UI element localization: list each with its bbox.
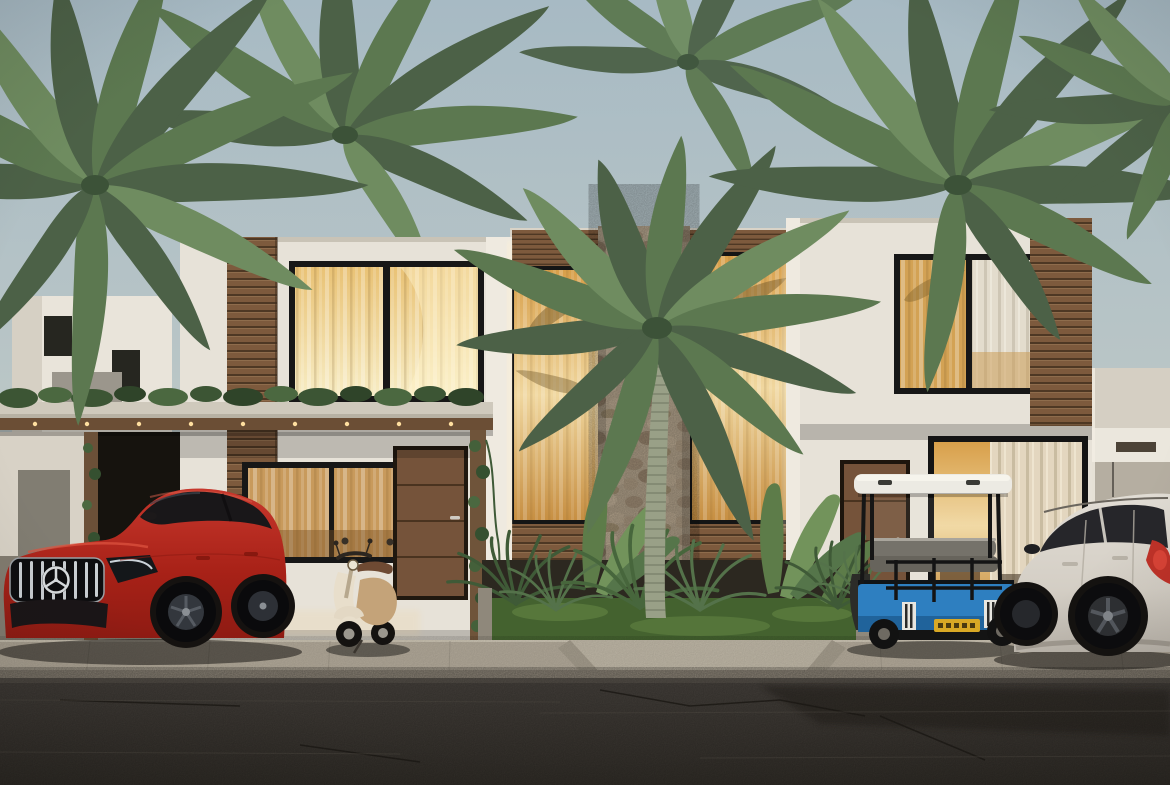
- scene-image: [0, 0, 1170, 785]
- vignette-overlay: [0, 0, 1170, 785]
- architectural-render: [0, 0, 1170, 785]
